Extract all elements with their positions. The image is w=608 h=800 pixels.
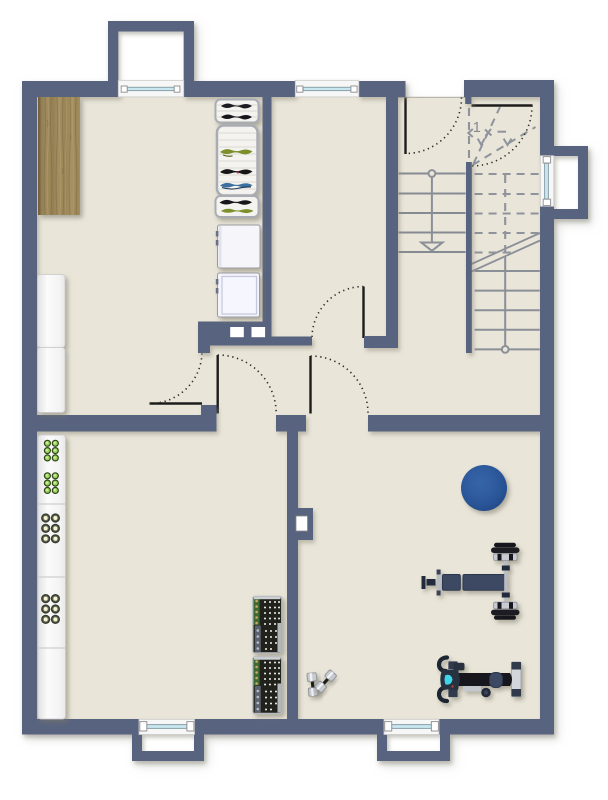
svg-text:1: 1	[473, 120, 481, 136]
